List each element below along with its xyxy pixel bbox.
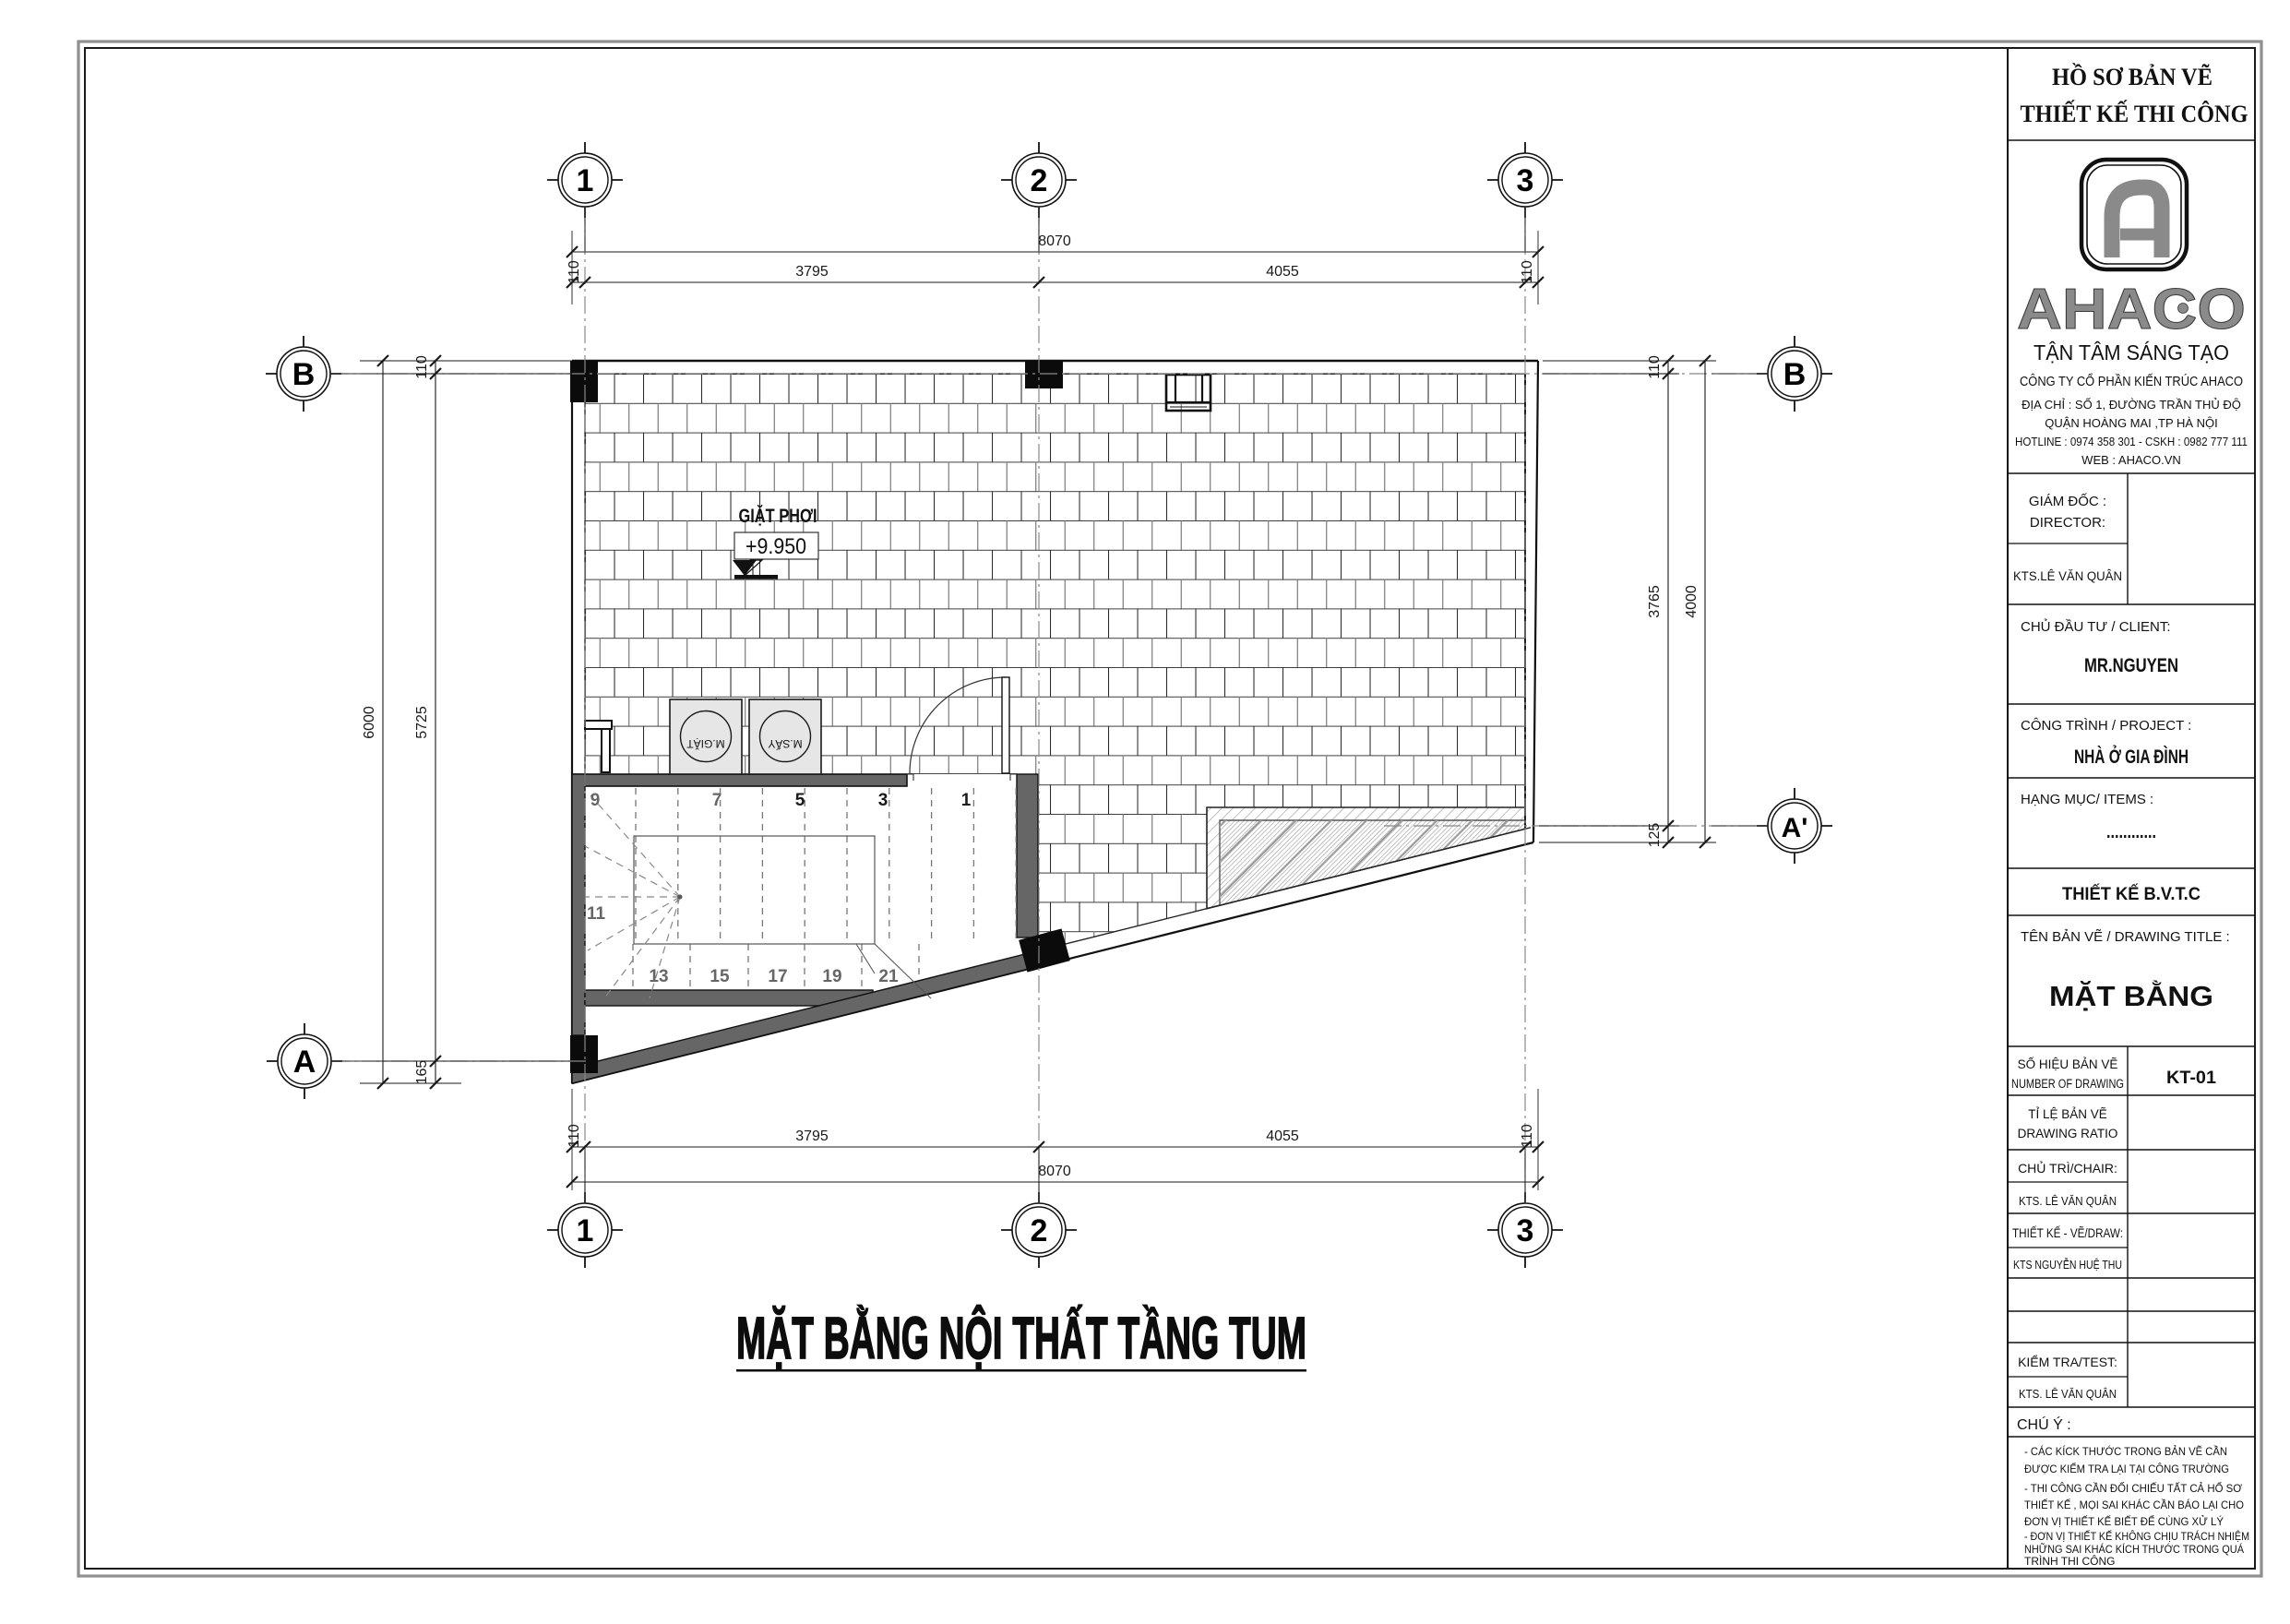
svg-text:110: 110 (1647, 355, 1663, 379)
svg-text:3: 3 (1517, 1213, 1534, 1248)
svg-text:- THI CÔNG CẦN ĐỐI CHIẾU TẤT C: - THI CÔNG CẦN ĐỐI CHIẾU TẤT CẢ HỔ SƠ (2024, 1481, 2243, 1495)
svg-text:TRÌNH THI CÔNG: TRÌNH THI CÔNG (2024, 1554, 2115, 1568)
svg-text:7: 7 (712, 791, 722, 810)
svg-text:GIẶT PHƠI: GIẶT PHƠI (739, 506, 817, 527)
svg-text:NHÀ Ở GIA ĐÌNH: NHÀ Ở GIA ĐÌNH (2074, 746, 2189, 768)
svg-text:- ĐƠN VỊ THIẾT KẾ KHÔNG CHỊU T: - ĐƠN VỊ THIẾT KẾ KHÔNG CHỊU TRÁCH NHIỆM (2024, 1529, 2249, 1543)
svg-text:NUMBER OF DRAWING: NUMBER OF DRAWING (2011, 1077, 2124, 1091)
svg-text:15: 15 (710, 967, 730, 986)
svg-text:NHỮNG SAI KHÁC KÍCH THƯỚC TRON: NHỮNG SAI KHÁC KÍCH THƯỚC TRONG QUÁ (2024, 1542, 2244, 1556)
svg-text:3795: 3795 (795, 1128, 829, 1144)
svg-text:HOTLINE : 0974 358 301 - C: HOTLINE : 0974 358 301 - CSKH : 0982 777… (2015, 435, 2248, 448)
svg-text:KTS. LÊ VĂN QUÂN: KTS. LÊ VĂN QUÂN (2019, 1387, 2117, 1401)
svg-text:6000: 6000 (362, 706, 377, 739)
svg-text:4055: 4055 (1266, 264, 1299, 280)
svg-text:M.SẤY: M.SẤY (768, 737, 802, 751)
svg-text:B: B (292, 357, 316, 392)
svg-text:165: 165 (414, 1060, 430, 1085)
svg-text:4000: 4000 (1684, 585, 1700, 618)
svg-text:THIẾT KẾ B.V.T.C: THIẾT KẾ B.V.T.C (2062, 884, 2201, 904)
svg-text:B: B (1783, 357, 1807, 392)
svg-text:1: 1 (577, 1213, 594, 1248)
svg-text:A: A (293, 1045, 316, 1080)
svg-text:CHÚ Ý :: CHÚ Ý : (2017, 1415, 2071, 1433)
svg-text:1: 1 (577, 163, 594, 198)
svg-text:SỐ HIỆU BẢN VẼ: SỐ HIỆU BẢN VẼ (2018, 1057, 2118, 1071)
svg-text:11: 11 (587, 904, 606, 924)
svg-text:2: 2 (1031, 163, 1048, 198)
svg-text:2: 2 (1031, 1213, 1048, 1248)
svg-text:TỈ LỆ BẢN VẼ: TỈ LỆ BẢN VẼ (2028, 1107, 2107, 1121)
svg-text:110: 110 (567, 260, 582, 284)
svg-text:MẶT BẰNG: MẶT BẰNG (2049, 980, 2213, 1012)
svg-text:KIỂM TRA/TEST:: KIỂM TRA/TEST: (2018, 1354, 2117, 1369)
svg-text:CÔNG TY CỔ PHẦN KIẾN TRÚC AHAC: CÔNG TY CỔ PHẦN KIẾN TRÚC AHACO (2020, 373, 2243, 389)
svg-text:17: 17 (768, 967, 787, 986)
svg-text:3795: 3795 (795, 264, 829, 280)
svg-text:ĐƯỢC KIỂM TRA LẠI TẠI CÔNG TRƯ: ĐƯỢC KIỂM TRA LẠI TẠI CÔNG TRƯỜNG (2024, 1462, 2229, 1475)
svg-text:21: 21 (878, 967, 899, 986)
svg-text:+9.950: +9.950 (745, 534, 806, 559)
svg-text:CHỦ TRÌ/CHAIR:: CHỦ TRÌ/CHAIR: (2018, 1160, 2117, 1176)
svg-text:ĐỊA CHỈ : SỐ 1, ĐƯỜNG TRẦN THỦ: ĐỊA CHỈ : SỐ 1, ĐƯỜNG TRẦN THỦ ĐỘ (2022, 398, 2241, 412)
svg-text:5: 5 (795, 791, 805, 810)
svg-text:A': A' (1782, 813, 1808, 843)
svg-text:CÔNG TRÌNH / PROJECT :: CÔNG TRÌNH / PROJECT : (2021, 718, 2191, 734)
svg-text:ĐƠN VỊ THIẾT KẾ BIẾT ĐỂ CÙNG X: ĐƠN VỊ THIẾT KẾ BIẾT ĐỂ CÙNG XỬ LÝ (2024, 1514, 2224, 1528)
svg-text:TẬN TÂM SÁNG TẠO: TẬN TÂM SÁNG TẠO (2034, 340, 2229, 364)
svg-text:8070: 8070 (1038, 1164, 1071, 1179)
svg-text:CHỦ ĐẦU TƯ / CLIENT:: CHỦ ĐẦU TƯ / CLIENT: (2021, 618, 2171, 635)
svg-text:13: 13 (649, 967, 668, 986)
svg-text:- CÁC KÍCK THƯỚC TRONG BẢN VẼ: - CÁC KÍCK THƯỚC TRONG BẢN VẼ CẦN (2024, 1444, 2227, 1458)
svg-text:DRAWING RATIO: DRAWING RATIO (2018, 1127, 2118, 1140)
svg-text:HẠNG MỤC/ ITEMS :: HẠNG MỤC/ ITEMS : (2021, 792, 2153, 807)
svg-text:3765: 3765 (1647, 585, 1663, 618)
svg-text:KTS. LÊ VĂN QUÂN: KTS. LÊ VĂN QUÂN (2019, 1194, 2117, 1208)
svg-text:THIẾT KẾ , MỌI SAI KHÁC CẦN BÁ: THIẾT KẾ , MỌI SAI KHÁC CẦN BÁO LẠI CHO (2024, 1498, 2244, 1511)
svg-text:MẶT BẰNG NỘI THẤT TẦNG TUM: MẶT BẰNG NỘI THẤT TẦNG TUM (736, 1304, 1306, 1371)
svg-text:3: 3 (1517, 163, 1534, 198)
svg-text:110: 110 (1520, 260, 1535, 284)
svg-text:MR.NGUYEN: MR.NGUYEN (2084, 655, 2178, 676)
svg-text:125: 125 (1647, 823, 1663, 848)
svg-text:KT-01: KT-01 (2166, 1069, 2216, 1088)
svg-text:THIẾT KẾ THI CÔNG: THIẾT KẾ THI CÔNG (2021, 101, 2248, 127)
svg-text:............: ............ (2106, 822, 2156, 842)
svg-text:4055: 4055 (1266, 1128, 1299, 1144)
svg-text:GIÁM ĐỐC :: GIÁM ĐỐC : (2029, 493, 2106, 509)
svg-text:110: 110 (414, 355, 430, 379)
svg-text:3: 3 (878, 791, 889, 810)
svg-text:KTS NGUYỄN HUỆ THU: KTS NGUYỄN HUỆ THU (2013, 1258, 2122, 1272)
svg-text:QUẬN HOÀNG MAI ,TP HÀ NỘI: QUẬN HOÀNG MAI ,TP HÀ NỘI (2045, 416, 2218, 430)
svg-text:9: 9 (590, 791, 601, 810)
svg-text:HỒ SƠ BẢN VẼ: HỒ SƠ BẢN VẼ (2052, 64, 2212, 90)
svg-text:WEB : AHACO.VN: WEB : AHACO.VN (2081, 453, 2181, 467)
svg-text:M.GIẶT: M.GIẶT (686, 737, 725, 751)
svg-text:1: 1 (961, 791, 972, 810)
svg-text:19: 19 (822, 967, 841, 986)
svg-text:5725: 5725 (414, 706, 430, 739)
svg-text:KTS.LÊ VĂN QUÂN: KTS.LÊ VĂN QUÂN (2013, 569, 2122, 583)
svg-text:110: 110 (1520, 1124, 1535, 1148)
svg-text:TÊN BẢN VẼ / DRAWING TITLE :: TÊN BẢN VẼ / DRAWING TITLE : (2021, 929, 2230, 945)
svg-text:8070: 8070 (1038, 233, 1071, 249)
svg-text:AHACO: AHACO (2017, 278, 2246, 341)
svg-text:110: 110 (567, 1124, 582, 1148)
svg-text:THIẾT KẾ - VẼ/DRAW:: THIẾT KẾ - VẼ/DRAW: (2012, 1225, 2123, 1240)
svg-text:DIRECTOR:: DIRECTOR: (2030, 515, 2105, 531)
